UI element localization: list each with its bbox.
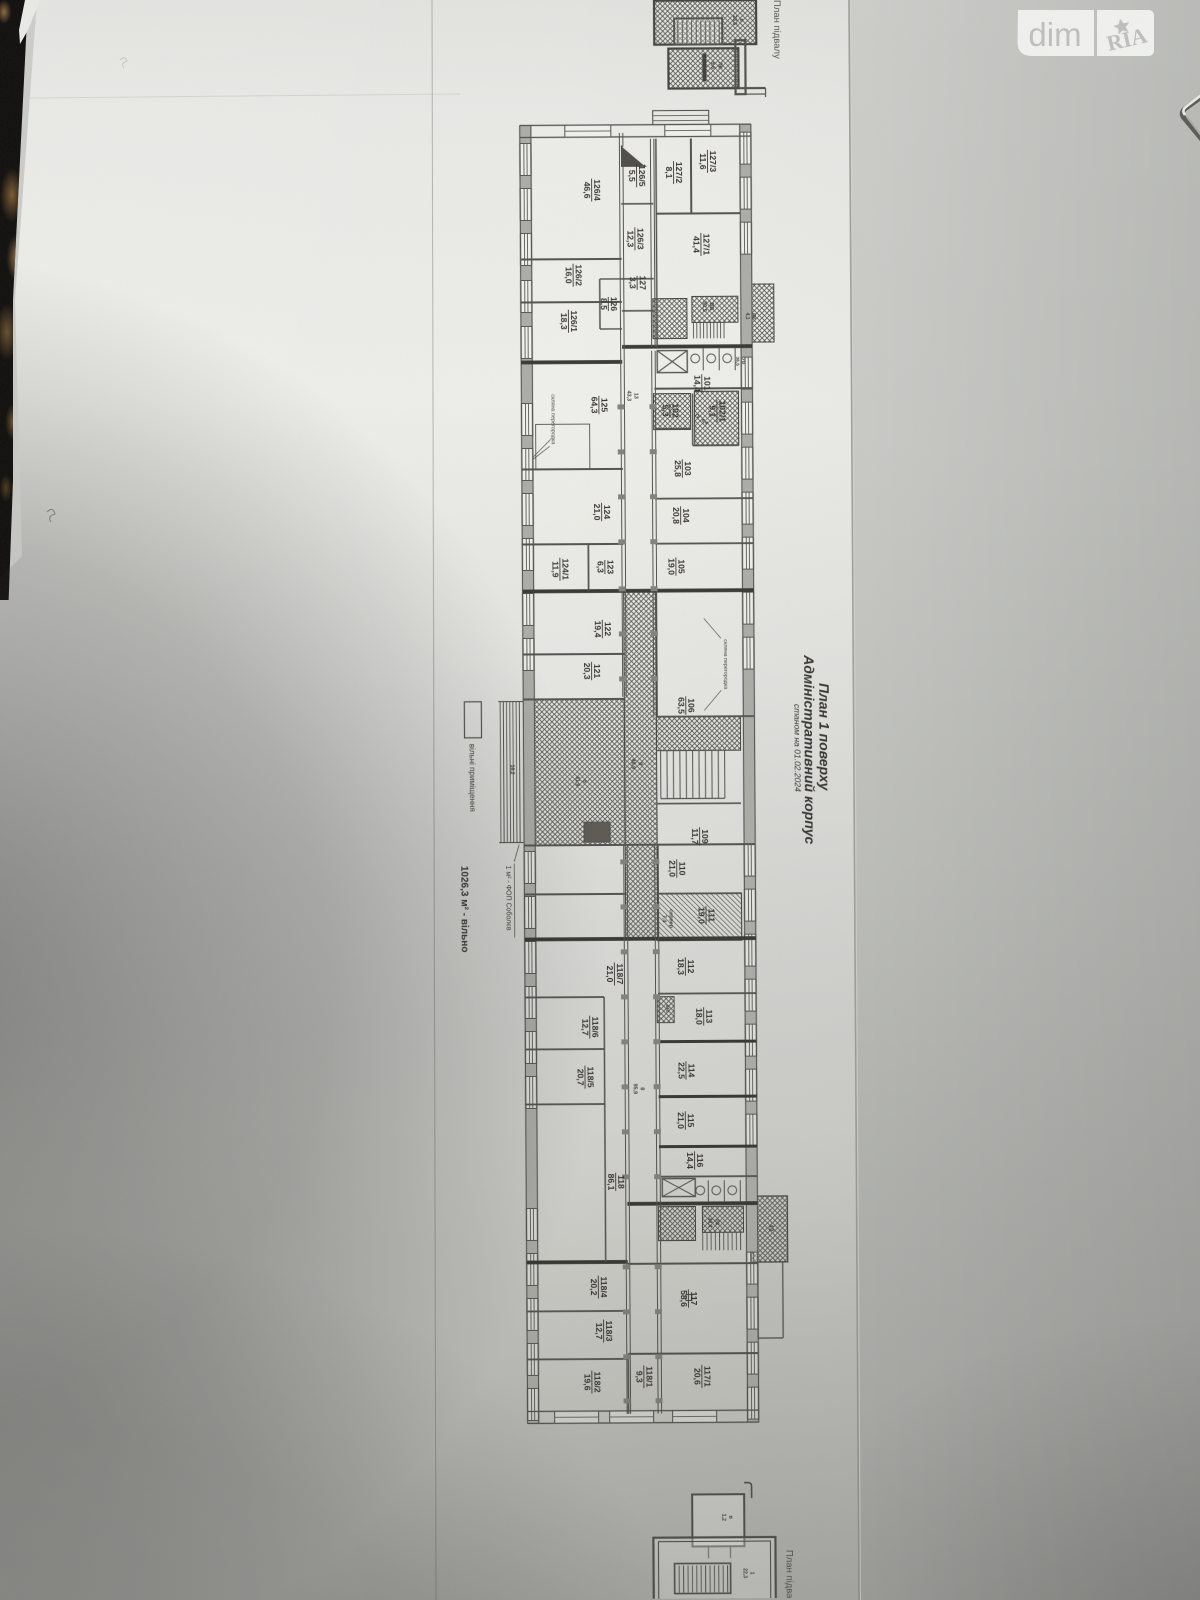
svg-text:dim: dim (1028, 16, 1081, 53)
